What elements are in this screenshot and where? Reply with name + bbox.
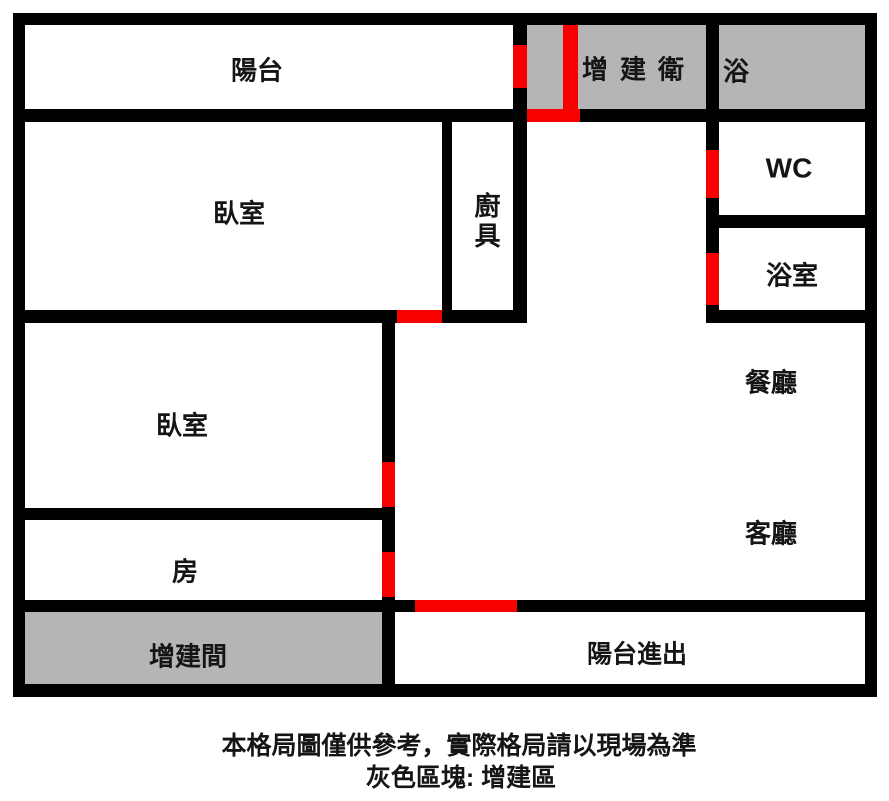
label-room: 房 xyxy=(172,558,198,587)
label-annex-bath: 增建衛 xyxy=(582,56,696,85)
wall-outer-top xyxy=(13,13,877,25)
caption-line-1: 本格局圖僅供參考，實際格局請以現場為準 xyxy=(221,726,696,762)
wall-wc-bathroom-divider xyxy=(706,215,865,228)
door-balcony-access-marker xyxy=(415,600,517,612)
wall-kitchen-left xyxy=(442,122,452,323)
door-balcony-side-marker xyxy=(513,45,527,88)
label-bathroom: 浴室 xyxy=(766,262,818,291)
label-kitchen: 廚具 xyxy=(473,192,499,252)
wall-below-bathroom xyxy=(706,310,877,323)
label-bedroom-top: 臥室 xyxy=(213,200,265,229)
label-balcony: 陽台 xyxy=(231,57,283,86)
label-balcony-access: 陽台進出 xyxy=(587,641,687,669)
door-bedroom-top-marker xyxy=(397,310,442,323)
wall-below-balcony xyxy=(13,109,877,122)
door-annex-bath-vertical-marker xyxy=(563,25,578,122)
label-living: 客廳 xyxy=(745,520,797,549)
wall-outer-bottom xyxy=(13,684,877,697)
floor-plan: 陽台 增建衛 浴 臥室 廚具 WC 浴室 餐廳 臥室 客廳 房 增建間 陽台進出… xyxy=(0,0,889,801)
door-wc-marker xyxy=(706,150,719,198)
door-bedroom-mid-marker xyxy=(382,462,395,507)
door-bathroom-marker xyxy=(706,253,719,305)
wall-bedroom-mid-room-divider xyxy=(25,508,395,520)
door-annex-bath-bottom-marker xyxy=(527,109,580,122)
label-wc: WC xyxy=(766,154,813,185)
label-dining: 餐廳 xyxy=(745,369,797,398)
label-annex-room: 增建間 xyxy=(149,643,227,672)
label-bath: 浴 xyxy=(723,58,749,87)
label-bedroom-mid: 臥室 xyxy=(156,412,208,441)
door-room-marker xyxy=(382,552,395,597)
caption-line-2: 灰色區塊: 增建區 xyxy=(366,758,556,794)
